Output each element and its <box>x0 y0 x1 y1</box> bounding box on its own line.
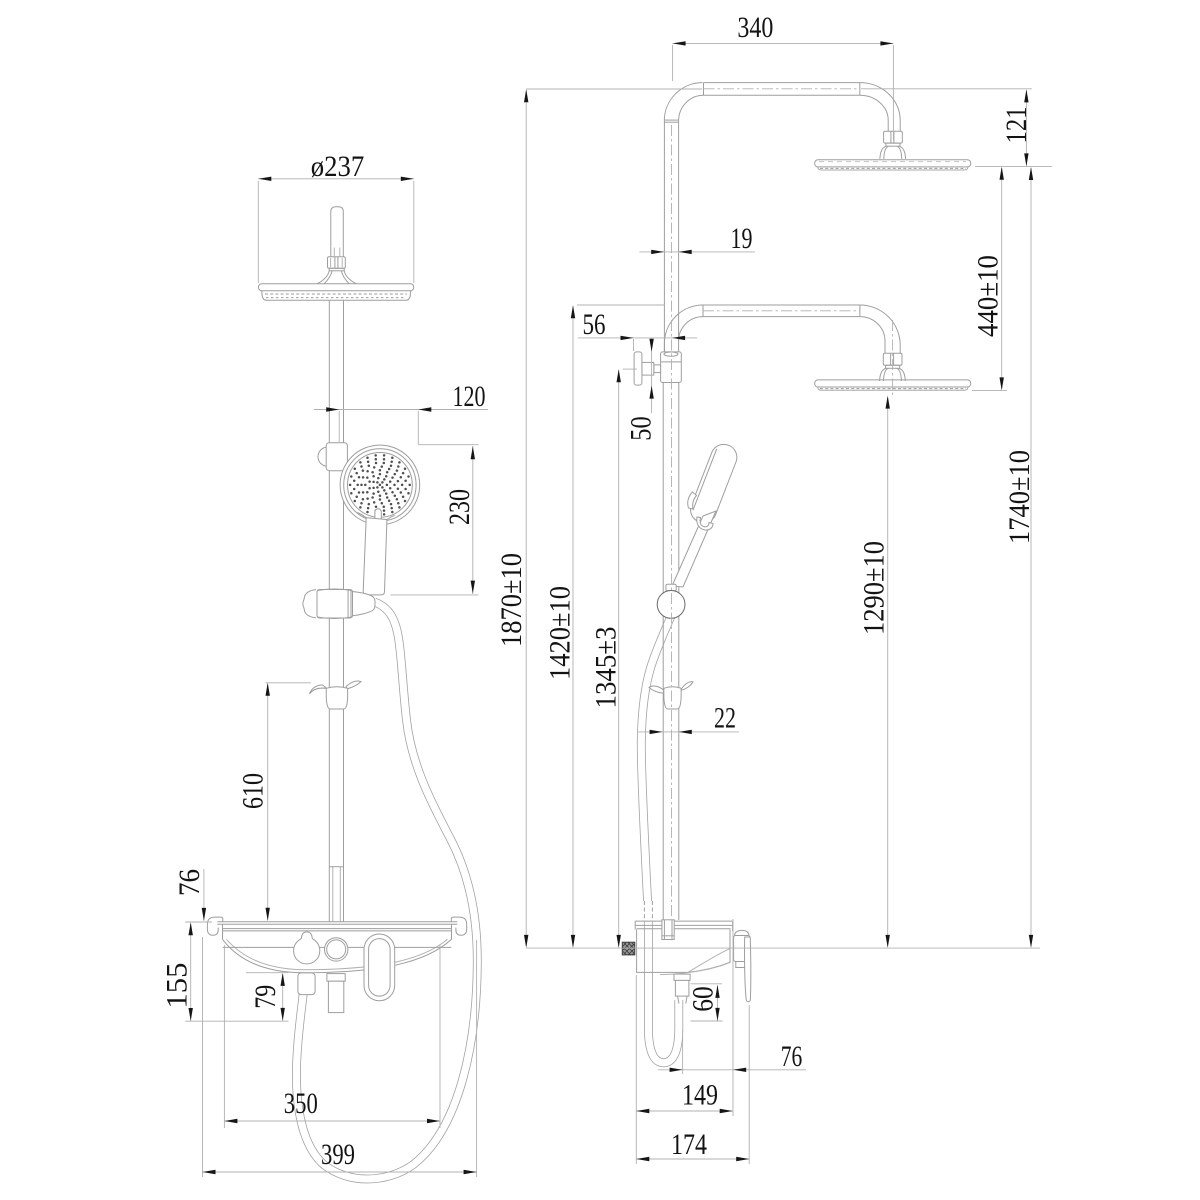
svg-text:149: 149 <box>682 1079 718 1112</box>
svg-text:1420±10: 1420±10 <box>543 586 576 680</box>
svg-text:174: 174 <box>671 1128 707 1161</box>
svg-text:19: 19 <box>731 222 753 255</box>
svg-text:350: 350 <box>284 1087 318 1120</box>
svg-text:399: 399 <box>321 1138 355 1171</box>
svg-text:22: 22 <box>714 702 736 735</box>
svg-text:120: 120 <box>453 380 486 413</box>
svg-text:121: 121 <box>1000 107 1033 144</box>
svg-text:155: 155 <box>161 963 194 1009</box>
svg-text:1870±10: 1870±10 <box>495 553 528 647</box>
svg-text:1290±10: 1290±10 <box>857 541 890 635</box>
svg-text:440±10: 440±10 <box>972 255 1005 337</box>
svg-text:1345±3: 1345±3 <box>589 627 622 709</box>
svg-text:79: 79 <box>249 985 282 1009</box>
svg-text:50: 50 <box>625 416 658 440</box>
svg-text:1740±10: 1740±10 <box>1003 450 1036 544</box>
svg-text:76: 76 <box>781 1040 803 1073</box>
svg-text:60: 60 <box>687 986 720 1011</box>
svg-text:76: 76 <box>173 869 206 896</box>
svg-text:230: 230 <box>443 489 476 525</box>
svg-text:56: 56 <box>583 308 606 341</box>
svg-text:340: 340 <box>737 11 773 44</box>
svg-text:ø237: ø237 <box>311 150 365 183</box>
svg-text:610: 610 <box>237 773 270 809</box>
